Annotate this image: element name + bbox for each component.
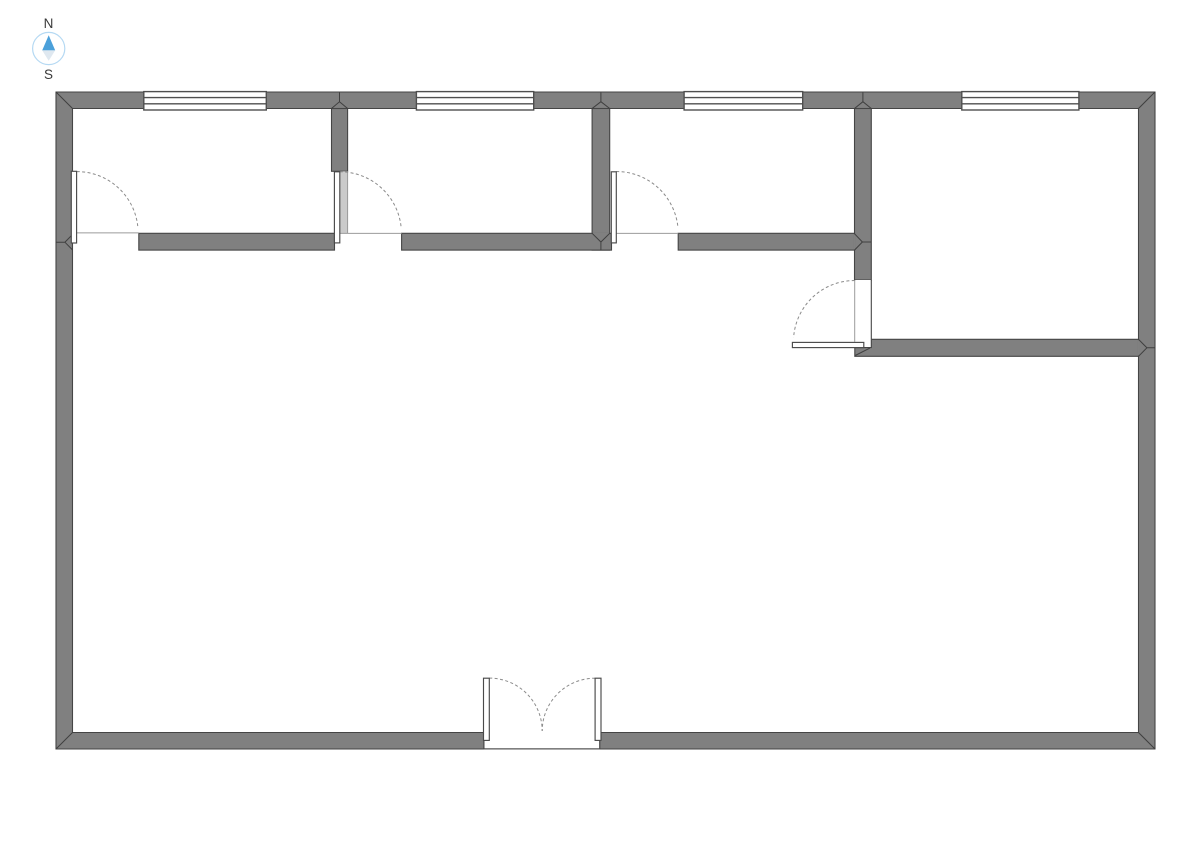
svg-text:N: N: [44, 16, 54, 31]
svg-text:S: S: [44, 67, 53, 82]
